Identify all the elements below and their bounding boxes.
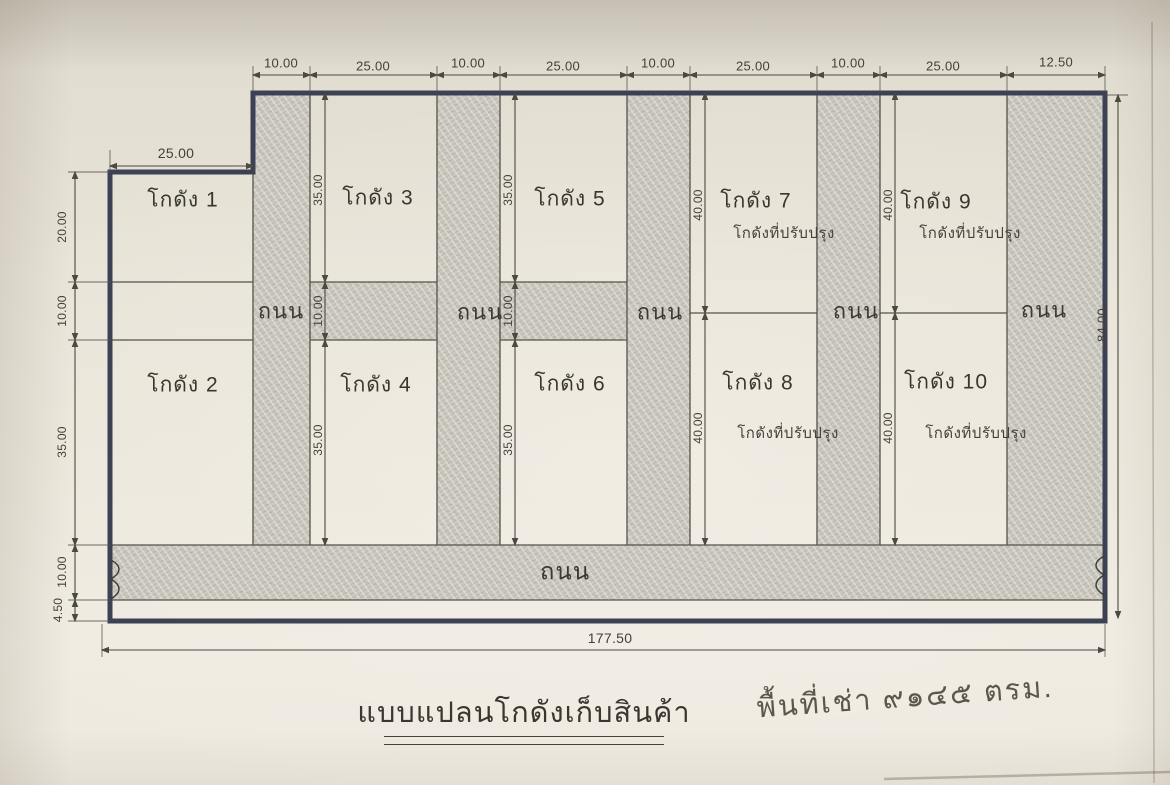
dim-left-4: 10.00	[55, 556, 69, 588]
dim-top-7: 10.00	[831, 56, 865, 71]
dim-col56-3: 35.00	[501, 424, 515, 456]
warehouse-8-label: โกดัง 8	[722, 367, 793, 400]
road-label-4: ถนน	[833, 294, 879, 329]
scanned-warehouse-plan: 10.00 25.00 10.00 25.00 10.00 25.00 10.0…	[0, 0, 1170, 785]
road-strip-middle-5-6	[500, 282, 627, 340]
warehouse-3-label: โกดัง 3	[342, 182, 413, 215]
dim-col34-3: 35.00	[311, 424, 325, 456]
dim-right-height: 84.00	[1095, 308, 1110, 342]
dim-col910-2: 40.00	[881, 412, 895, 444]
dim-col34-2: 10.00	[311, 295, 325, 327]
warehouse-7-subtitle: โกดังที่ปรับปรุง	[733, 221, 835, 245]
paper-edge-line	[884, 772, 1170, 779]
dim-col78-2: 40.00	[691, 412, 705, 444]
dim-top-2: 25.00	[356, 59, 390, 74]
dim-col34-1: 35.00	[311, 174, 325, 206]
dim-left-3: 35.00	[55, 426, 69, 458]
road-label-2: ถนน	[457, 295, 503, 330]
dim-top-6: 25.00	[736, 59, 770, 74]
dim-top-8: 25.00	[926, 59, 960, 74]
road-strip-bottom	[110, 545, 1105, 600]
warehouse-2-label: โกดัง 2	[147, 369, 218, 402]
road-strip-middle-3-4	[310, 282, 437, 340]
dim-col56-1: 35.00	[501, 174, 515, 206]
dim-left-5: 4.50	[51, 598, 65, 623]
plan-title-underline	[384, 736, 664, 745]
road-label-5: ถนน	[1021, 293, 1067, 328]
dim-top-4: 25.00	[546, 59, 580, 74]
dim-top-1: 10.00	[264, 56, 298, 71]
warehouse-5-label: โกดัง 5	[534, 183, 605, 216]
dim-top-9: 12.50	[1039, 55, 1073, 70]
warehouse-9-subtitle: โกดังที่ปรับปรุง	[919, 221, 1021, 245]
handwritten-area-note: พื้นที่เช่า ๙๑๔๕ ตรม.	[755, 664, 1055, 731]
dim-col78-1: 40.00	[691, 189, 705, 221]
warehouse-6-label: โกดัง 6	[534, 368, 605, 401]
dim-left-1: 20.00	[55, 211, 69, 243]
warehouse-9-label: โกดัง 9	[900, 186, 971, 219]
warehouse-7-label: โกดัง 7	[720, 185, 791, 218]
warehouse-1-label: โกดัง 1	[147, 184, 218, 217]
warehouse-10-subtitle: โกดังที่ปรับปรุง	[925, 421, 1027, 445]
warehouse-8-subtitle: โกดังที่ปรับปรุง	[737, 421, 839, 445]
dim-top-3: 10.00	[451, 56, 485, 71]
dim-bottom-width: 177.50	[588, 630, 633, 646]
road-label-1: ถนน	[258, 294, 304, 329]
dim-warehouse1-width: 25.00	[158, 145, 195, 161]
road-label-bottom: ถนน	[540, 552, 590, 591]
road-label-3: ถนน	[637, 295, 683, 330]
paper-fold-line	[1152, 22, 1154, 783]
dim-col910-1: 40.00	[881, 189, 895, 221]
dim-left-2: 10.00	[55, 295, 69, 327]
dim-top-5: 10.00	[641, 56, 675, 71]
plan-title: แบบแปลนโกดังเก็บสินค้า	[357, 689, 690, 735]
warehouse-4-label: โกดัง 4	[340, 369, 411, 402]
warehouse-10-label: โกดัง 10	[904, 366, 988, 399]
